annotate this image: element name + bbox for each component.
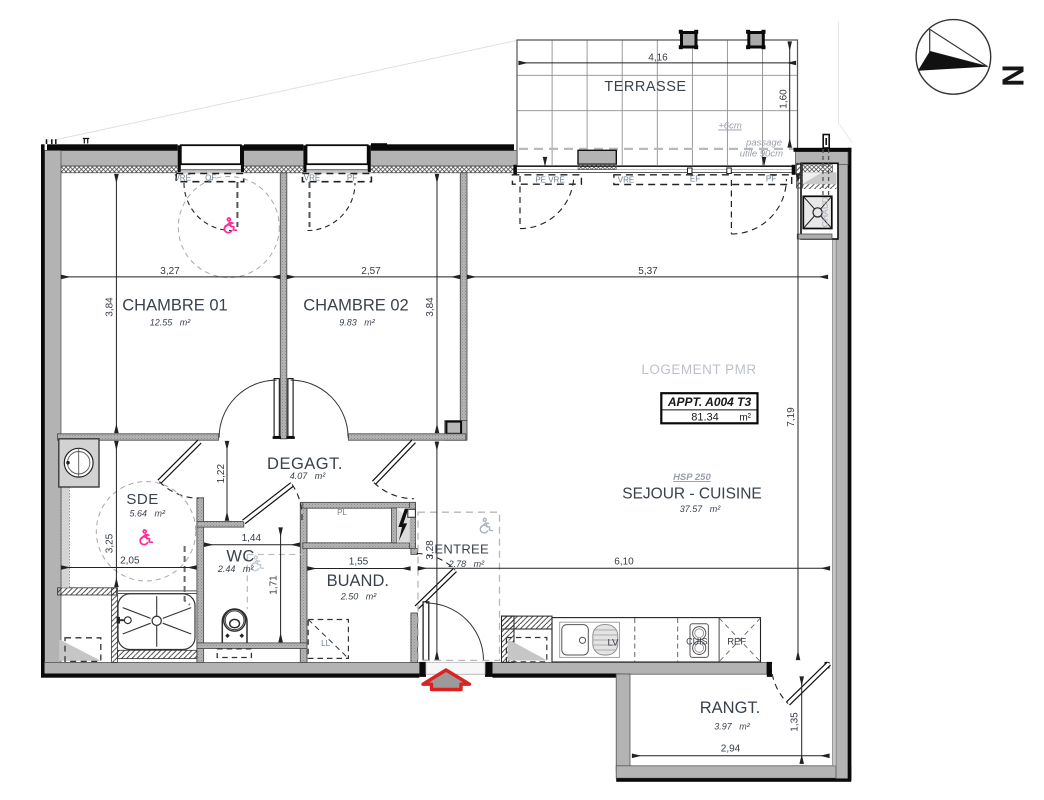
- svg-text:3,27: 3,27: [160, 266, 180, 277]
- svg-text:PF: PF: [347, 174, 357, 183]
- svg-text:SDE: SDE: [126, 491, 158, 508]
- svg-text:12.55 m²: 12.55 m²: [150, 318, 192, 328]
- svg-text:passage: passage: [745, 138, 782, 149]
- svg-text:1,60: 1,60: [779, 89, 790, 109]
- svg-text:2,94: 2,94: [721, 744, 741, 755]
- svg-text:1,44: 1,44: [242, 533, 262, 544]
- svg-text:1,35: 1,35: [790, 712, 801, 732]
- svg-text:LL: LL: [321, 639, 330, 648]
- svg-text:3,84: 3,84: [425, 297, 436, 317]
- svg-text:6,10: 6,10: [614, 556, 634, 567]
- svg-text:N: N: [996, 64, 1031, 86]
- svg-text:m²: m²: [739, 412, 751, 423]
- svg-text:+6cm: +6cm: [718, 121, 742, 132]
- svg-text:5.64 m²: 5.64 m²: [130, 509, 167, 519]
- svg-text:3,25: 3,25: [105, 533, 116, 553]
- svg-text:APPT. A004 T3: APPT. A004 T3: [667, 395, 752, 409]
- svg-text:WC: WC: [226, 548, 255, 566]
- svg-text:3,84: 3,84: [105, 297, 116, 317]
- svg-text:2,05: 2,05: [120, 556, 140, 567]
- svg-text:2.78 m²: 2.78 m²: [448, 559, 486, 569]
- svg-text:LV: LV: [608, 638, 620, 649]
- svg-text:TERRASSE: TERRASSE: [604, 79, 686, 95]
- svg-text:9.83 m²: 9.83 m²: [339, 318, 376, 328]
- svg-text:CUIS: CUIS: [686, 637, 708, 647]
- svg-text:7,19: 7,19: [786, 407, 797, 427]
- svg-text:RANGT.: RANGT.: [700, 699, 761, 717]
- svg-text:SEJOUR - CUISINE: SEJOUR - CUISINE: [622, 486, 762, 503]
- svg-text:PF: PF: [766, 175, 776, 184]
- svg-text:VRE: VRE: [304, 174, 320, 183]
- svg-text:2.50 m²: 2.50 m²: [340, 592, 378, 602]
- svg-text:PL: PL: [337, 508, 347, 517]
- svg-text:CHAMBRE 01: CHAMBRE 01: [122, 297, 227, 315]
- svg-text:EF: EF: [690, 175, 700, 184]
- svg-text:CHAUD: CHAUD: [820, 197, 830, 227]
- svg-text:VRE: VRE: [618, 176, 634, 185]
- svg-text:PE VRE: PE VRE: [535, 176, 564, 185]
- svg-text:HSP 250: HSP 250: [673, 472, 711, 483]
- svg-text:2.44 m²: 2.44 m²: [217, 564, 255, 574]
- svg-text:1,71: 1,71: [269, 575, 280, 595]
- svg-text:1,55: 1,55: [349, 557, 369, 568]
- svg-text:2,57: 2,57: [361, 266, 381, 277]
- svg-text:1,22: 1,22: [216, 464, 227, 484]
- svg-text:BUAND.: BUAND.: [327, 572, 389, 590]
- svg-text:REF: REF: [727, 637, 746, 648]
- svg-text:4,16: 4,16: [648, 53, 668, 64]
- svg-text:5,37: 5,37: [638, 266, 658, 277]
- svg-text:utile 90cm: utile 90cm: [740, 149, 783, 160]
- svg-text:VRE: VRE: [174, 174, 190, 183]
- svg-text:CHAMBRE 02: CHAMBRE 02: [303, 297, 408, 315]
- svg-text:LOGEMENT PMR: LOGEMENT PMR: [641, 362, 756, 377]
- svg-text:QF: QF: [205, 174, 216, 183]
- svg-text:3.97 m²: 3.97 m²: [714, 722, 751, 732]
- svg-text:ENTREE: ENTREE: [434, 542, 489, 557]
- svg-text:4.07 m²: 4.07 m²: [290, 471, 327, 481]
- svg-text:37.57 m²: 37.57 m²: [680, 504, 722, 514]
- svg-text:81.34: 81.34: [691, 411, 719, 423]
